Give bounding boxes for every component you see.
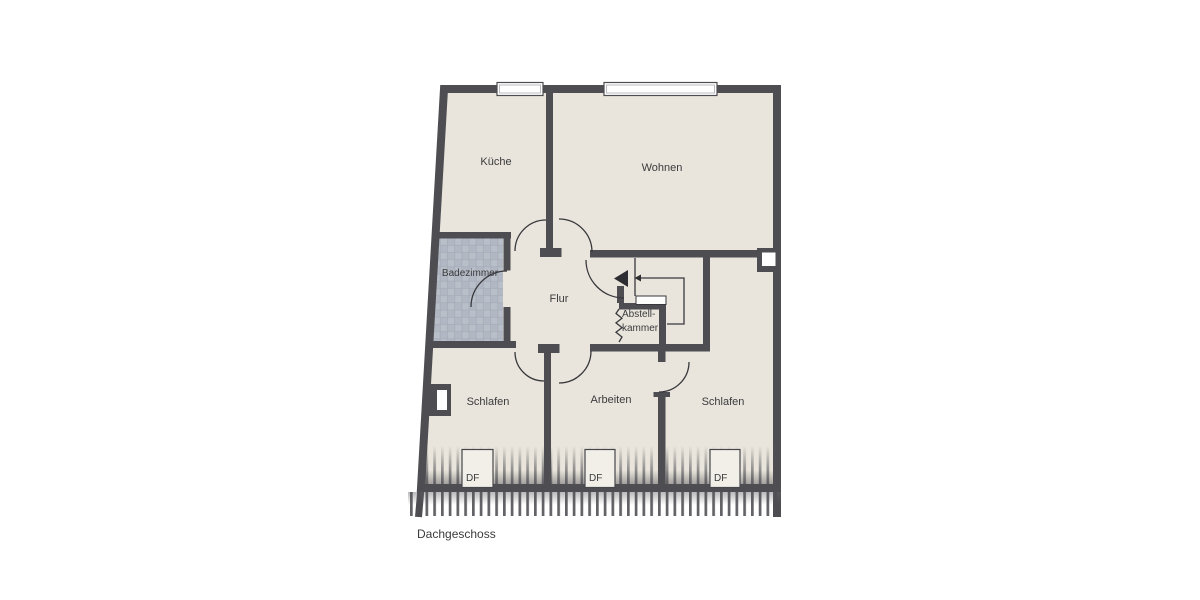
roof-window-label-2: DF [589, 473, 602, 484]
stair-tread [636, 296, 666, 305]
roof-window-label-3: DF [714, 473, 727, 484]
roof-slope-hatching-outer [408, 492, 781, 516]
living-room-window [604, 83, 717, 96]
kitchen-window [497, 83, 543, 96]
room-label-schlafen-left: Schlafen [467, 396, 510, 408]
floor-plan-dachgeschoss: Küche Wohnen Badezimmer Flur Schlafen Ar… [0, 0, 1200, 600]
room-label-kueche: Küche [480, 156, 511, 168]
room-label-flur: Flur [550, 293, 569, 305]
bedroom-left-window [429, 384, 451, 416]
floor-title: Dachgeschoss [417, 527, 496, 541]
room-label-schlafen-right: Schlafen [702, 396, 745, 408]
room-label-wohnen: Wohnen [642, 162, 683, 174]
bathroom-tiles [433, 238, 503, 341]
room-label-arbeiten: Arbeiten [591, 394, 632, 406]
room-label-badezimmer: Badezimmer [442, 268, 499, 279]
room-label-abstellkammer-line2: kammer [622, 323, 659, 334]
right-wall-window [757, 248, 781, 272]
roof-window-label-1: DF [466, 473, 479, 484]
room-label-abstellkammer-line1: Abstell- [622, 309, 655, 320]
